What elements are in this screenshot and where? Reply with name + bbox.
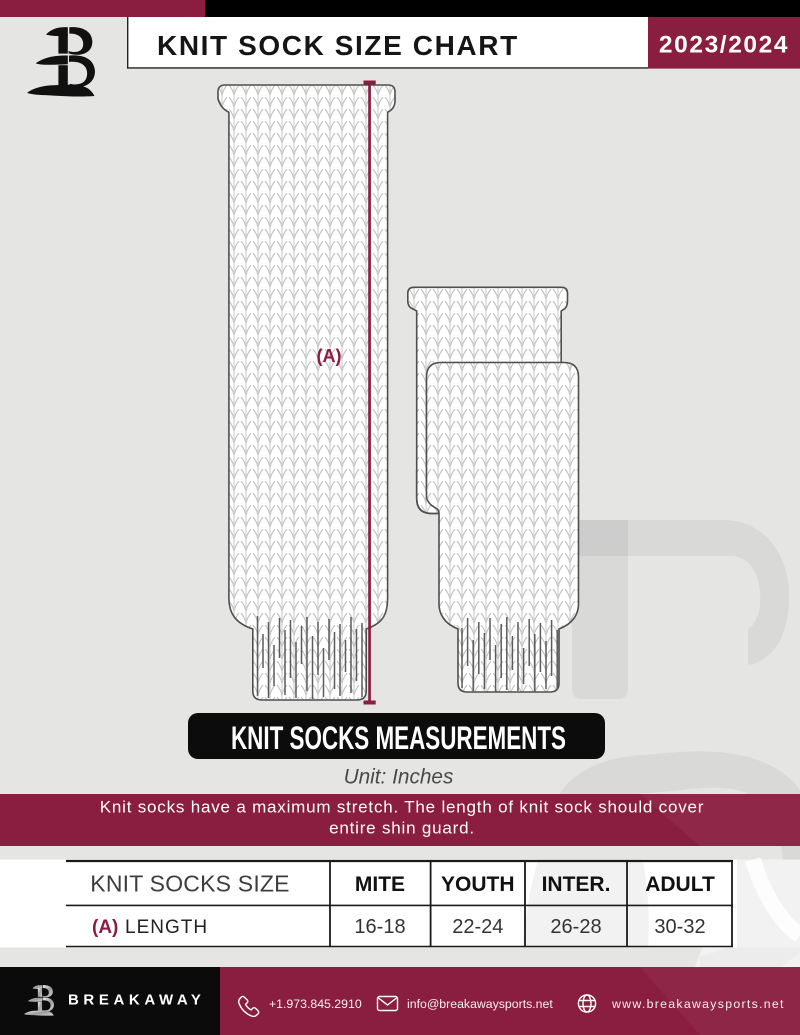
svg-text:Unit: Inches: Unit: Inches [344, 766, 454, 789]
svg-text:(A): (A) [317, 346, 342, 366]
svg-text:entire shin guard.: entire shin guard. [329, 819, 475, 838]
svg-text:26-28: 26-28 [550, 916, 601, 938]
svg-text:ADULT: ADULT [645, 873, 715, 896]
svg-text:30-32: 30-32 [654, 916, 705, 938]
svg-text:INTER.: INTER. [542, 873, 611, 896]
svg-text:KNIT SOCK SIZE CHART: KNIT SOCK SIZE CHART [157, 30, 519, 61]
svg-text:+1.973.845.2910: +1.973.845.2910 [269, 997, 362, 1011]
svg-text:BREAKAWAY: BREAKAWAY [68, 992, 206, 1009]
svg-text:22-24: 22-24 [452, 916, 503, 938]
svg-text:(A): (A) [92, 917, 118, 938]
svg-text:LENGTH: LENGTH [125, 917, 208, 938]
svg-text:16-18: 16-18 [354, 916, 405, 938]
svg-text:www.breakawaysports.net: www.breakawaysports.net [611, 997, 785, 1011]
svg-text:2023/2024: 2023/2024 [659, 32, 789, 59]
svg-text:info@breakawaysports.net: info@breakawaysports.net [407, 997, 553, 1011]
svg-text:MITE: MITE [355, 873, 405, 896]
svg-text:KNIT SOCKS MEASUREMENTS: KNIT SOCKS MEASUREMENTS [231, 720, 566, 756]
svg-text:KNIT SOCKS SIZE: KNIT SOCKS SIZE [90, 871, 289, 897]
svg-text:YOUTH: YOUTH [441, 873, 515, 896]
svg-text:Knit socks have a maximum stre: Knit socks have a maximum stretch. The l… [100, 798, 705, 817]
